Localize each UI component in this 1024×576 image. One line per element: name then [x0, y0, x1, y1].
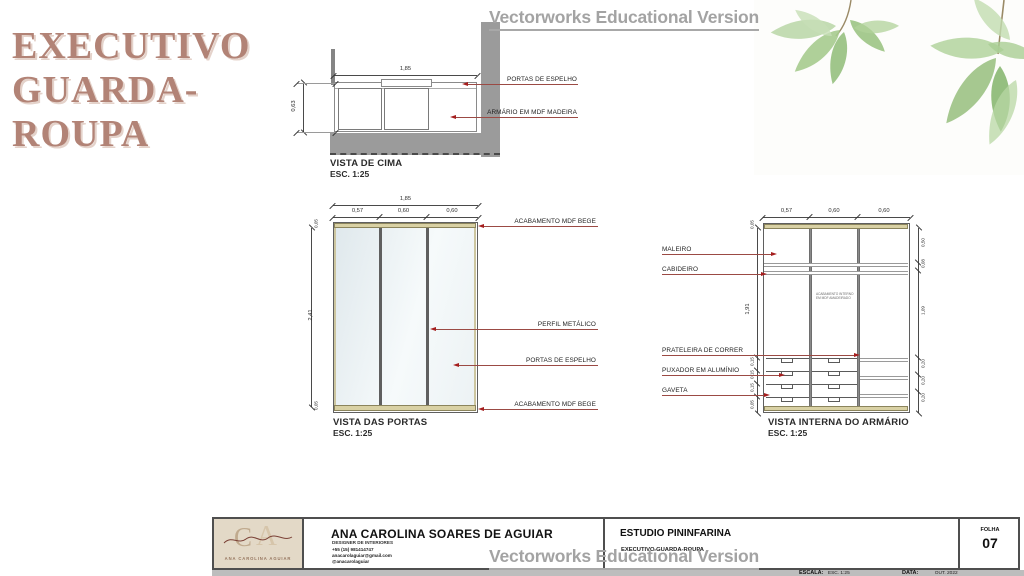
label-maleiro: MALEIRO	[662, 246, 691, 253]
cabideiro-rod	[764, 271, 908, 275]
drawer-handle	[781, 385, 793, 389]
dim-line-top-width	[334, 75, 477, 76]
logo-name: ANA CAROLINA AGUIAR	[214, 556, 302, 561]
page-title-line1: EXECUTIVO	[12, 24, 312, 68]
internal-dim-line-cols	[763, 217, 910, 218]
side-edge-left	[334, 228, 336, 405]
internal-dim-r2: 0,08	[921, 256, 926, 272]
sliding-shelf	[860, 397, 908, 398]
label-gaveta: GAVETA	[662, 387, 688, 394]
dim-line-depth	[303, 83, 304, 132]
sliding-shelf	[860, 376, 908, 377]
sliding-door-panel-1	[338, 88, 382, 130]
page-title: EXECUTIVO GUARDA- ROUPA	[12, 24, 312, 156]
leader-cabideiro	[662, 274, 761, 275]
page-title-line2: GUARDA-	[12, 68, 312, 112]
label-armario-mdf: ARMÁRIO EM MDF MADEIRA	[462, 109, 577, 116]
internal-cabinet: ACABAMENTO INTERNO EM MDF AMADEIRADO	[763, 223, 910, 413]
escala-row: ESCALA: ESC. 1:25	[799, 561, 850, 576]
internal-dim-col3: 0,60	[858, 208, 910, 214]
internal-dim-r5: 0,20	[921, 373, 926, 389]
doors-dim-col1: 0,57	[335, 208, 380, 214]
maleiro-shelf	[764, 263, 908, 267]
dim-depth: 0,63	[291, 96, 297, 116]
leader-armario-mdf	[456, 117, 578, 118]
internal-note-line2: EM MDF AMADEIRADO	[816, 296, 856, 300]
leader-acabamento-bottom	[484, 409, 598, 410]
top-view-caption: VISTA DE CIMA	[330, 158, 402, 169]
mirror-doors	[334, 228, 476, 405]
label-acabamento-bottom: ACABAMENTO MDF BEGE	[470, 401, 596, 408]
metal-profile-1	[379, 228, 382, 405]
leader-puxador	[662, 375, 779, 376]
doors-dim-bottom-strip: 0,05	[314, 399, 319, 413]
internal-dim-col2: 0,60	[810, 208, 858, 214]
doors-view-caption: VISTA DAS PORTAS	[333, 417, 427, 428]
dim-top-width: 1,85	[334, 66, 477, 72]
folha-number: 07	[960, 535, 1020, 551]
internal-dim-r4: 0,20	[921, 356, 926, 372]
sliding-door-offset	[381, 79, 432, 87]
sliding-shelf	[860, 358, 908, 359]
data-value: OUT. 2022	[935, 571, 958, 576]
drawer-handle	[828, 398, 840, 402]
arrow-gaveta	[764, 393, 770, 397]
drawer-handle	[781, 359, 793, 363]
arrow-prateleira	[854, 353, 860, 357]
data-row: DATA: OUT. 2022	[902, 561, 958, 576]
label-cabideiro: CABIDEIRO	[662, 266, 698, 273]
drawer-handle	[781, 398, 793, 402]
internal-dim-r6: 0,20	[921, 390, 926, 406]
arrow-puxador	[779, 373, 785, 377]
page-title-line3: ROUPA	[12, 112, 312, 156]
bottom-mdf-strip	[334, 405, 476, 411]
arrow-portas-espelho	[453, 363, 459, 367]
leader-maleiro	[662, 254, 771, 255]
leader-portas-espelho-top	[468, 84, 578, 85]
internal-dim-lb1: 0,15	[750, 355, 755, 369]
internal-dim-height: 1,91	[745, 298, 751, 320]
arrow-portas-espelho-top	[462, 82, 468, 86]
leader-perfil-metalico	[436, 329, 598, 330]
internal-dim-col1: 0,57	[763, 208, 810, 214]
leader-portas-espelho	[459, 365, 598, 366]
internal-dim-r3: 1,09	[921, 303, 926, 319]
internal-view-scale: ESC. 1:25	[768, 428, 807, 438]
label-prateleira: PRATELEIRA DE CORRER	[662, 347, 743, 354]
arrow-cabideiro	[761, 272, 767, 276]
internal-view-caption: VISTA INTERNA DO ARMÁRIO	[768, 417, 909, 428]
vectorworks-watermark-top: Vectorworks Educational Version	[489, 7, 759, 31]
ext-line-depth-top	[297, 83, 335, 84]
internal-note: ACABAMENTO INTERNO EM MDF AMADEIRADO	[816, 292, 856, 300]
doors-view-scale: ESC. 1:25	[333, 428, 372, 438]
designer-name: ANA CAROLINA SOARES DE AGUIAR	[331, 527, 553, 541]
slide-canvas: EXECUTIVO GUARDA- ROUPA Vectorworks Educ…	[0, 0, 1024, 576]
logo-signature-icon	[222, 533, 294, 547]
internal-dim-r1: 0,50	[921, 235, 926, 251]
label-perfil-metalico: PERFIL METÁLICO	[470, 321, 596, 328]
doors-dim-line-cols	[333, 217, 478, 218]
side-edge-right	[474, 228, 476, 405]
label-puxador: PUXADOR EM ALUMÍNIO	[662, 367, 739, 374]
label-portas-espelho-top: PORTAS DE ESPELHO	[462, 76, 577, 83]
doors-cabinet	[333, 222, 478, 413]
internal-top-strip	[764, 224, 908, 229]
sliding-door-panel-2	[384, 88, 429, 130]
drawer-handle	[828, 359, 840, 363]
logo-cell: C A ANA CAROLINA AGUIAR	[214, 519, 302, 568]
arrow-acabamento-top	[478, 224, 484, 228]
sliding-shelf	[860, 394, 908, 395]
doors-dim-col2: 0,60	[380, 208, 427, 214]
leader-acabamento-top	[484, 226, 598, 227]
cell-divider	[302, 519, 304, 568]
internal-divider-1	[809, 229, 812, 406]
doors-dim-col3: 0,60	[428, 208, 476, 214]
top-view-scale: ESC. 1:25	[330, 169, 369, 179]
drawer-handle	[828, 372, 840, 376]
doors-dim-line-total	[333, 205, 478, 206]
designer-role: DESIGNER DE INTERIORES	[332, 540, 393, 545]
internal-dim-line-right	[918, 228, 919, 413]
data-label: DATA:	[902, 570, 918, 576]
vectorworks-watermark-bottom: Vectorworks Educational Version	[489, 546, 759, 570]
internal-bottom-strip	[764, 406, 908, 411]
label-acabamento-top: ACABAMENTO MDF BEGE	[470, 218, 596, 225]
sliding-shelf	[860, 379, 908, 380]
doors-dim-height: 2,41	[308, 304, 314, 326]
ext-line-depth-bottom	[297, 132, 335, 133]
internal-dim-lb3: 0,15	[750, 381, 755, 395]
arrow-armario-mdf	[450, 115, 456, 119]
designer-social: @anacarolaguiar	[332, 559, 369, 565]
leader-gaveta	[662, 395, 764, 396]
escala-value: ESC. 1:25	[828, 571, 850, 576]
studio-name: ESTUDIO PININFARINA	[620, 528, 731, 539]
label-portas-espelho: PORTAS DE ESPELHO	[470, 357, 596, 364]
drawer-handle	[828, 385, 840, 389]
leader-prateleira	[662, 355, 854, 356]
arrow-acabamento-bottom	[478, 407, 484, 411]
arrow-maleiro	[771, 252, 777, 256]
folha-label: FOLHA	[960, 527, 1020, 533]
escala-label: ESCALA:	[799, 570, 823, 576]
wall-bottom	[330, 133, 500, 155]
arrow-perfil-metalico	[430, 327, 436, 331]
leaves-decoration	[754, 0, 1024, 175]
internal-dim-lb4: 0,05	[750, 398, 755, 412]
doors-dim-total: 1,85	[333, 196, 478, 202]
metal-profile-2	[426, 228, 429, 405]
sliding-shelf	[860, 361, 908, 362]
